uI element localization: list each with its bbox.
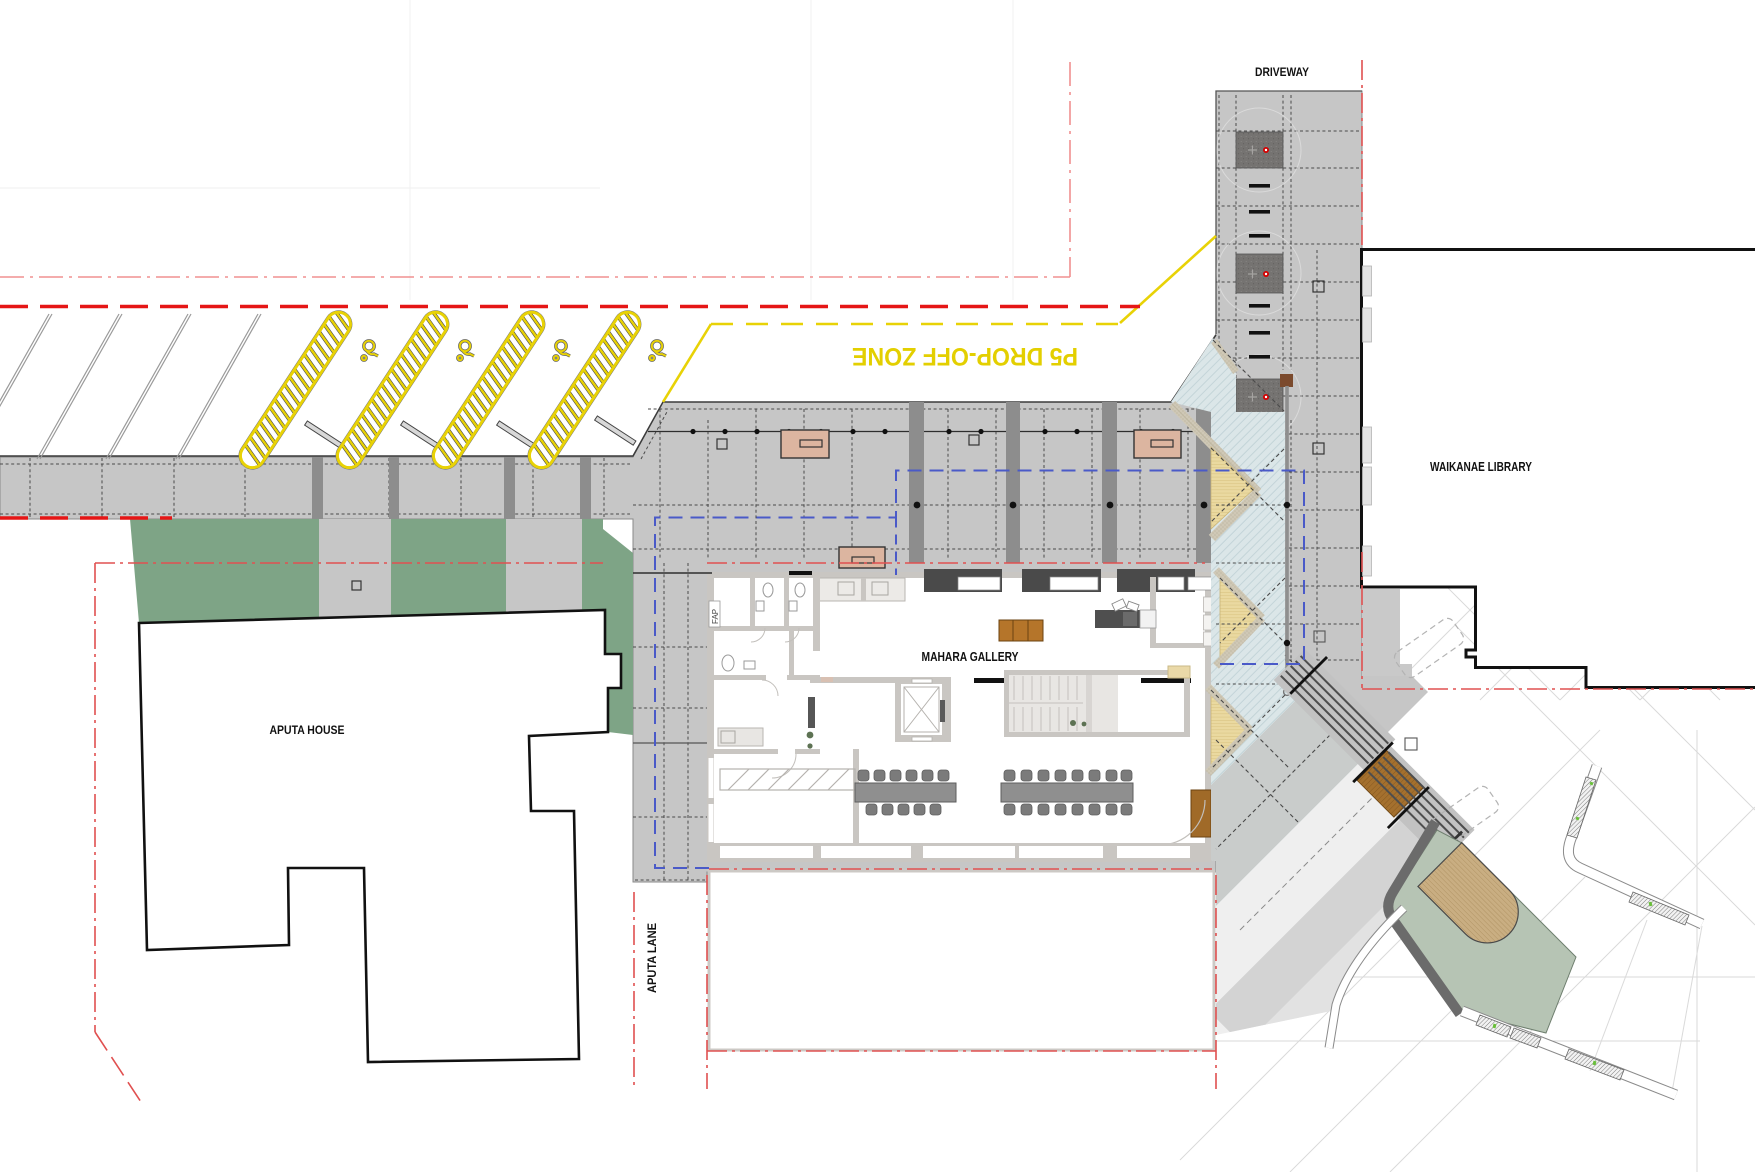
- svg-text:MAHARA GALLERY: MAHARA GALLERY: [922, 649, 1019, 664]
- svg-text:WAIKANAE LIBRARY: WAIKANAE LIBRARY: [1430, 460, 1533, 474]
- svg-text:APUTA HOUSE: APUTA HOUSE: [270, 723, 345, 737]
- svg-text:DRIVEWAY: DRIVEWAY: [1255, 65, 1309, 79]
- svg-text:APUTA LANE: APUTA LANE: [645, 923, 659, 993]
- svg-text:P5 DROP-OFF ZONE: P5 DROP-OFF ZONE: [852, 342, 1078, 370]
- svg-text:FAP: FAP: [711, 609, 720, 624]
